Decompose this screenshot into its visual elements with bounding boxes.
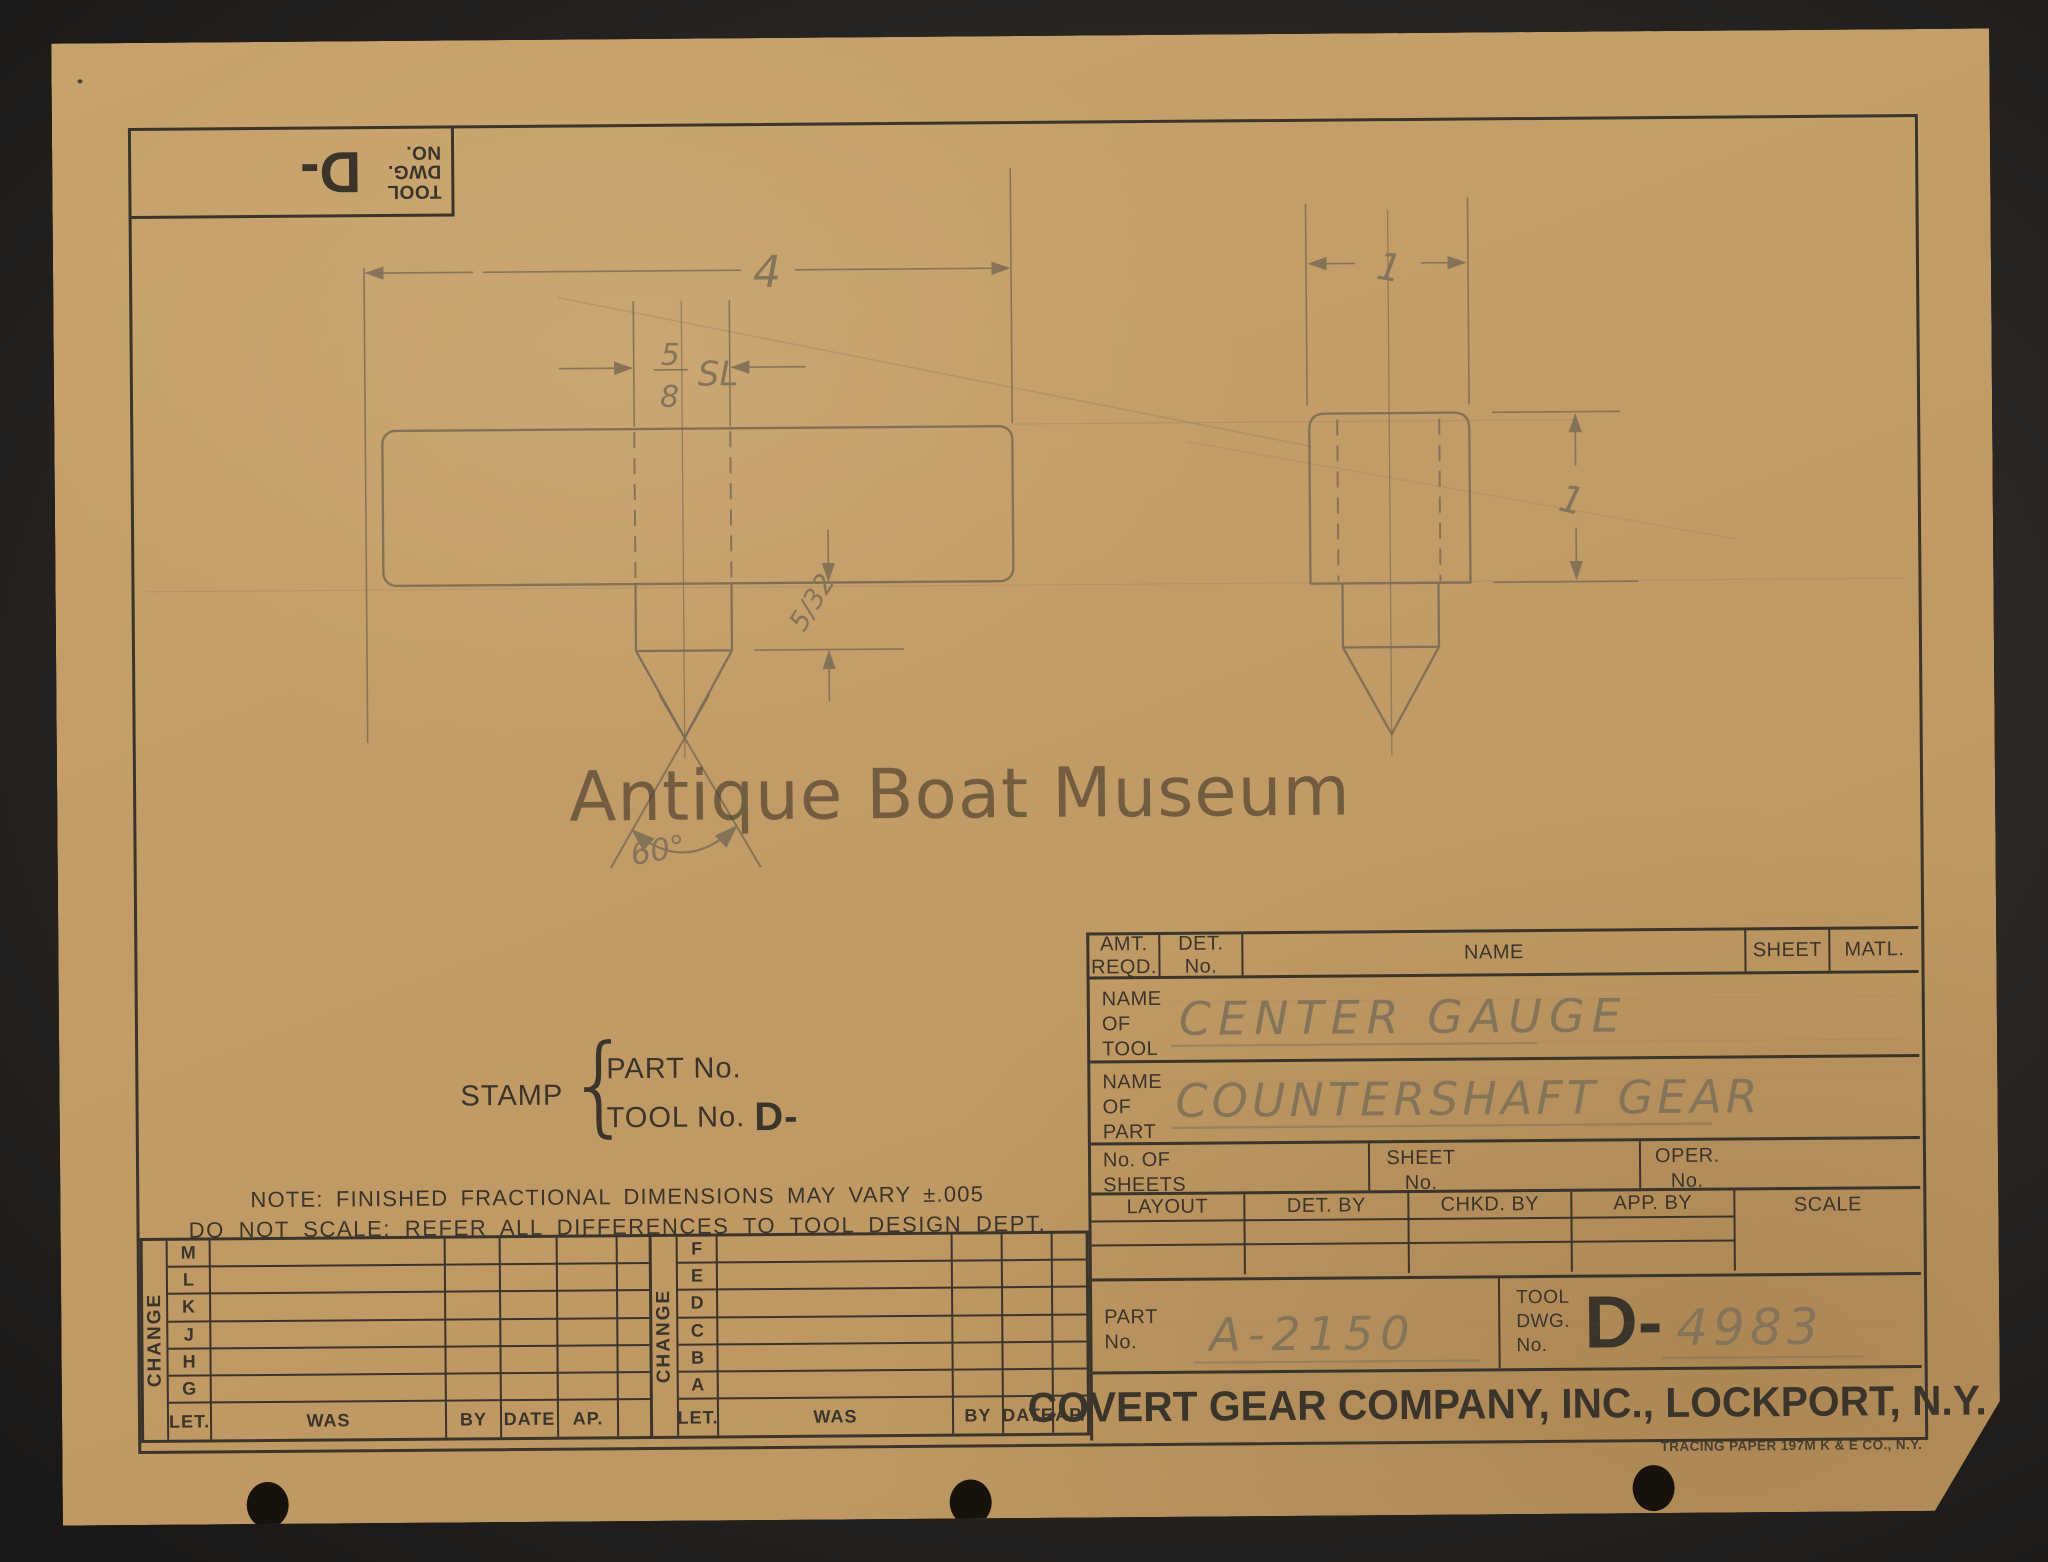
stamp-box-rotated-content: TOOL DWG. NO. D- <box>131 128 452 216</box>
tool-dwg-stamp-box: TOOL DWG. NO. D- <box>131 128 455 219</box>
scale-label: SCALE <box>1735 1189 1921 1270</box>
row-letter: D <box>678 1291 718 1318</box>
col-let: LET. <box>169 1403 212 1439</box>
punch-hole <box>247 1482 289 1528</box>
stamp-tool-prefix: D- <box>754 1095 799 1139</box>
punch-hole <box>1632 1465 1674 1511</box>
col-was: WAS <box>719 1398 954 1436</box>
header-name: NAME <box>1243 930 1746 975</box>
change-table-right: CHANGE F E D C B A LET.WASBYDATEAP. <box>652 1231 1091 1439</box>
change-table-left-vertical-label: CHANGE <box>143 1241 170 1440</box>
col-by: BY <box>954 1397 1004 1433</box>
col-date: DATE <box>502 1401 559 1437</box>
chkd-by-entry-2 <box>1410 1243 1573 1273</box>
table-row: L <box>168 1264 649 1295</box>
watermark-text: Antique Boat Museum <box>569 751 1351 837</box>
stamp-tool-line: TOOL No. D- <box>606 1095 798 1142</box>
name-of-tool-row: NAME OF TOOL <box>1090 973 1920 1064</box>
approval-grid: LAYOUT DET. BY CHKD. BY APP. BY SCALE <box>1091 1189 1921 1282</box>
table-row: G <box>169 1373 650 1404</box>
row-letter: E <box>678 1264 718 1291</box>
table-row: A <box>679 1369 1087 1399</box>
col-was: WAS <box>212 1402 447 1440</box>
app-by-label: APP. BY <box>1572 1190 1735 1218</box>
part-tool-number-row: PART No. TOOL DWG. No. D- <box>1092 1275 1922 1375</box>
stamp-tool-text: TOOL No. <box>607 1101 746 1134</box>
name-of-part-row: NAME OF PART <box>1090 1057 1920 1146</box>
tolerance-note: NOTE: FINISHED FRACTIONAL DIMENSIONS MAY… <box>143 1181 1091 1214</box>
table-row: F <box>678 1234 1086 1264</box>
table-footer: LET.WASBYDATEAP. <box>679 1397 1087 1436</box>
table-row: M <box>168 1237 649 1268</box>
company-name: COVERT GEAR COMPANY, INC., LOCKPORT, N.Y… <box>1028 1376 1987 1432</box>
tool-dwg-prefix: D- <box>1584 1277 1663 1368</box>
col-by: BY <box>447 1401 502 1437</box>
chkd-by-label: CHKD. BY <box>1409 1192 1572 1220</box>
row-letter: B <box>678 1345 718 1372</box>
name-of-tool-label: NAME OF TOOL <box>1090 979 1175 1061</box>
change-table-right-vertical-label: CHANGE <box>652 1237 680 1436</box>
stamp-word: STAMP <box>460 1080 563 1114</box>
change-label: CHANGE <box>653 1289 676 1384</box>
app-by-entry-2 <box>1573 1241 1736 1271</box>
table-row: D <box>678 1288 1086 1318</box>
header-det-no: DET. No. <box>1160 934 1243 976</box>
det-by-entry-1 <box>1245 1220 1409 1245</box>
chkd-by-entry-1 <box>1409 1219 1572 1244</box>
table-row: H <box>168 1346 649 1377</box>
blueprint-sheet: TOOL DWG. NO. D- STAMP { PART No. TOOL N… <box>51 28 2001 1525</box>
title-block: AMT. REQD. DET. No. NAME SHEET MATL. NAM… <box>1086 926 1922 1441</box>
sheets-oper-row: No. OF SHEETS SHEET No. OPER. No. <box>1091 1139 1920 1196</box>
tracing-paper-note: TRACING PAPER 197M K & E CO., N.Y. <box>1522 1437 1922 1455</box>
oper-no-label: OPER. No. <box>1655 1144 1719 1195</box>
title-block-header-row: AMT. REQD. DET. No. NAME SHEET MATL. <box>1089 929 1918 980</box>
det-by-entry-2 <box>1246 1244 1410 1274</box>
stamp-box-prefix: D- <box>300 143 362 201</box>
header-amt-reqd: AMT. REQD. <box>1089 935 1160 977</box>
tool-dwg-no-label: TOOL DWG. No. <box>1516 1286 1577 1358</box>
row-letter: M <box>168 1240 211 1268</box>
part-no-label: PART No. <box>1104 1305 1164 1355</box>
row-letter: G <box>169 1376 212 1404</box>
stamp-part-line: PART No. <box>606 1052 742 1086</box>
app-by-entry-1 <box>1572 1217 1735 1242</box>
table-row: C <box>678 1315 1086 1345</box>
det-by-label: DET. BY <box>1245 1193 1409 1221</box>
punch-hole <box>950 1479 992 1525</box>
row-letter: H <box>168 1349 211 1377</box>
change-label: CHANGE <box>144 1293 167 1388</box>
name-of-part-label: NAME OF PART <box>1090 1063 1175 1143</box>
layout-entry-1 <box>1092 1221 1246 1246</box>
col-ap: AP. <box>559 1400 619 1436</box>
header-matl: MATL. <box>1830 929 1918 971</box>
table-footer: LET.WASBYDATEAP. <box>169 1400 650 1440</box>
table-row: E <box>678 1261 1086 1291</box>
table-row: K <box>168 1291 649 1322</box>
company-row: COVERT GEAR COMPANY, INC., LOCKPORT, N.Y… <box>1093 1368 1922 1441</box>
row-letter: K <box>168 1295 211 1323</box>
paper-speck <box>77 79 82 83</box>
row-letter: J <box>168 1322 211 1350</box>
row-letter: F <box>678 1236 718 1263</box>
col-let: LET. <box>679 1399 719 1435</box>
header-sheet: SHEET <box>1746 930 1830 972</box>
scanned-drawing-scene: TOOL DWG. NO. D- STAMP { PART No. TOOL N… <box>0 0 2048 1562</box>
layout-label: LAYOUT <box>1091 1194 1245 1222</box>
change-table-left: CHANGE M L K J H G LET.WASBYDATEAP. <box>140 1234 654 1443</box>
row-letter: L <box>168 1268 211 1296</box>
table-row: B <box>678 1342 1086 1372</box>
table-row: J <box>168 1318 649 1349</box>
row-letter: C <box>678 1318 718 1345</box>
stamp-box-label: TOOL DWG. NO. <box>375 141 441 201</box>
layout-entry-2 <box>1092 1245 1246 1275</box>
row-letter: A <box>679 1372 719 1399</box>
sheet-no-label: SHEET No. <box>1384 1146 1458 1197</box>
no-of-sheets-label: No. OF SHEETS <box>1103 1147 1223 1198</box>
